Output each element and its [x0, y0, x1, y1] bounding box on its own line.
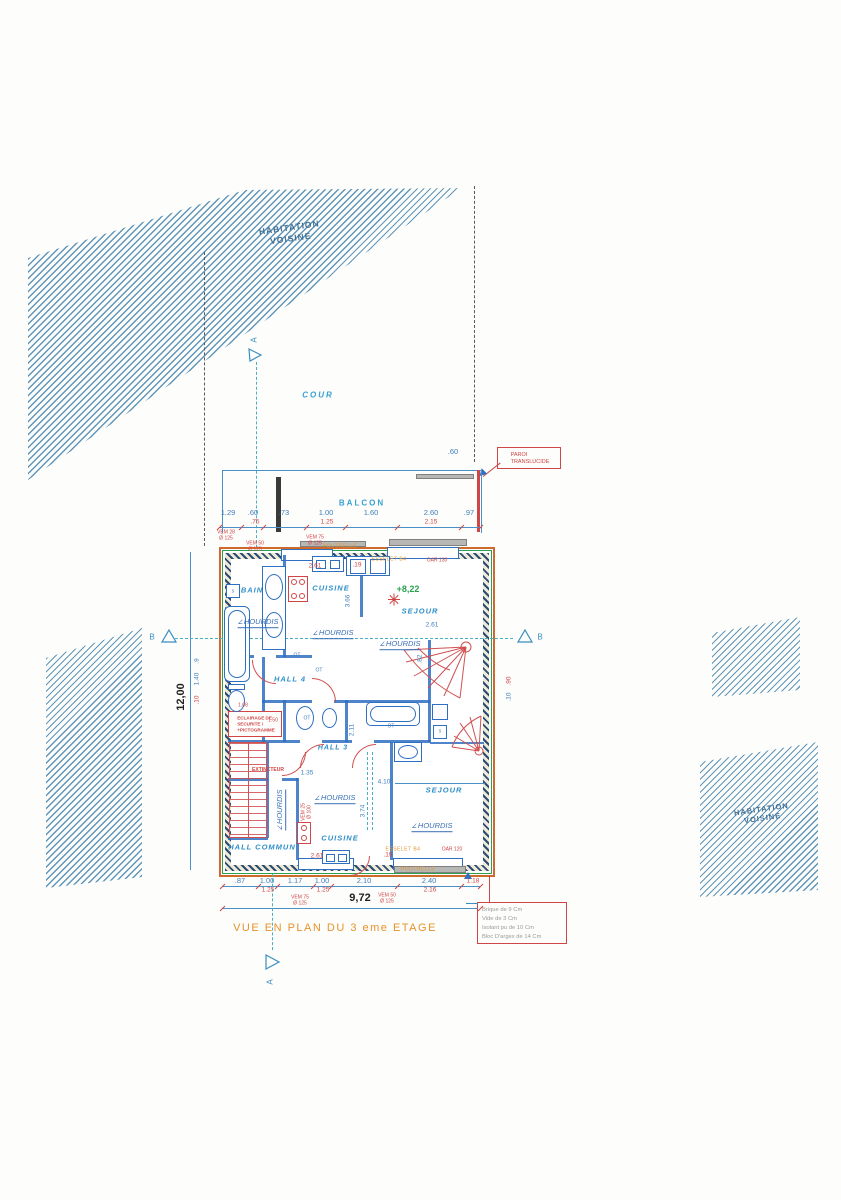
dim-paroi-offset: .60 [448, 448, 458, 456]
dim-cuisine2-1: 3.74 [359, 805, 366, 818]
ot-4: OT [388, 724, 395, 730]
dim-tick [256, 884, 262, 890]
dim-top-2: .60 [248, 509, 258, 517]
dim-left-2: 1.40 [193, 673, 200, 686]
dim-tick [304, 525, 310, 531]
hourdis-6: HOURDIS [412, 822, 453, 832]
dim-tick [220, 906, 226, 912]
dim-top-sub-2: 1.25 [321, 518, 334, 525]
beam-oar-bottom: OAR 120 [442, 847, 463, 853]
dim-hall3-2: 4.10 [378, 778, 391, 785]
ot-2: OT [316, 668, 323, 674]
dim-tick [239, 525, 245, 531]
dim-kitchen-1: 2.61 [309, 562, 322, 569]
vent-vem75: VEM 75 Ø 125 [306, 536, 324, 547]
hourdis-5: HOURDIS [276, 790, 286, 831]
dim-left-1: .9 [193, 658, 200, 663]
dim-top-4: 1.00 [319, 509, 334, 517]
dim-bot-6: 2.40 [422, 877, 437, 885]
dim-tick [395, 884, 401, 890]
ot-3: OT [304, 716, 311, 722]
vent-vem25: VEM 25 Ø 100 [302, 803, 313, 821]
beam-poutrelle-bottom: POUTRELLE [401, 867, 435, 873]
dim-tick [329, 884, 335, 890]
dim-kitchen-3: 3.66 [344, 595, 351, 608]
dim-top-7: .97 [464, 509, 474, 517]
dim-right-2: .10 [505, 692, 512, 701]
dim-bot-2: 1.00 [260, 877, 275, 885]
vent-vem50b: VEM 50 Ø 125 [378, 894, 396, 905]
hourdis-2: HOURDIS [313, 629, 354, 639]
dim-top-6: 2.60 [424, 509, 439, 517]
ot-1: OT [294, 653, 301, 659]
dim-bot-7: 1.18 [467, 877, 480, 884]
vent-vem50: VEM 50 Ø 125 [246, 542, 264, 553]
dim-bath-1: 2.11 [348, 724, 355, 736]
dim-tick [459, 525, 465, 531]
beam-esselet-top: ESSELET B4 [372, 557, 407, 563]
vent-vem75b: VEM 75 Ø 125 [291, 896, 309, 907]
dim-bot-1: .87 [235, 877, 245, 885]
hourdis-3: HOURDIS [380, 640, 421, 650]
beam-esselet-bottom: ESSELET B4 [386, 847, 421, 853]
dim-tick [220, 884, 226, 890]
dim-wc-1: 1.50 [268, 718, 278, 724]
dim-bot-4: 1.00 [315, 877, 330, 885]
dim-cuisine2-2: 2.61 [311, 852, 324, 859]
vent-vem28: VEM 28 Ø 125 [217, 531, 235, 542]
dim-tick [478, 906, 484, 912]
dim-tick [395, 525, 401, 531]
dim-tick [275, 884, 281, 890]
dim-bot-5: 2.10 [357, 877, 372, 885]
sink-symbol-1: s [232, 589, 235, 595]
dim-bot-sub-3: 2.16 [424, 886, 437, 893]
dim-left-3: .10 [193, 695, 200, 704]
sink-symbol-2: s [439, 729, 442, 735]
beam-oar-top: OAR 130 [427, 558, 448, 564]
beam-poutrelle-top: POUTRELLE [323, 544, 357, 550]
hourdis-1: HOURDIS [238, 618, 279, 628]
dim-bot-3: 1.17 [288, 877, 303, 885]
dim-tick [261, 525, 267, 531]
dim-stair-top: .82 [416, 654, 423, 663]
dim-hall4-1: 1.08 [238, 703, 248, 709]
dim-tick [311, 884, 317, 890]
dim-top-1: 1.29 [221, 509, 236, 517]
dim-tick [343, 525, 349, 531]
dim-hall3-1: 1.35 [301, 769, 314, 776]
dim-top-sub-1: .75 [250, 518, 259, 525]
dim-top-sub-3: 2.15 [425, 518, 438, 525]
dim-tick [478, 525, 484, 531]
annotation-layer: 1.29.60.731.001.602.60.97.751.252.15.60V… [0, 0, 841, 1200]
dim-bot-sub-2: 1.25 [317, 886, 330, 893]
dim-tick [459, 884, 465, 890]
dim-top-5: 1.60 [364, 509, 379, 517]
dim-right-1: .90 [505, 676, 512, 685]
dim-top-3: .73 [279, 509, 289, 517]
floor-plan-sheet: HABITATION VOISINE HABITATION VOISINE CO… [0, 0, 841, 1200]
dim-kitchen-2: .19 [352, 561, 361, 568]
dim-sejour-top: 2.61 [426, 621, 439, 628]
dim-bot-sub-1: 1.25 [262, 886, 275, 893]
hourdis-4: HOURDIS [315, 794, 356, 804]
